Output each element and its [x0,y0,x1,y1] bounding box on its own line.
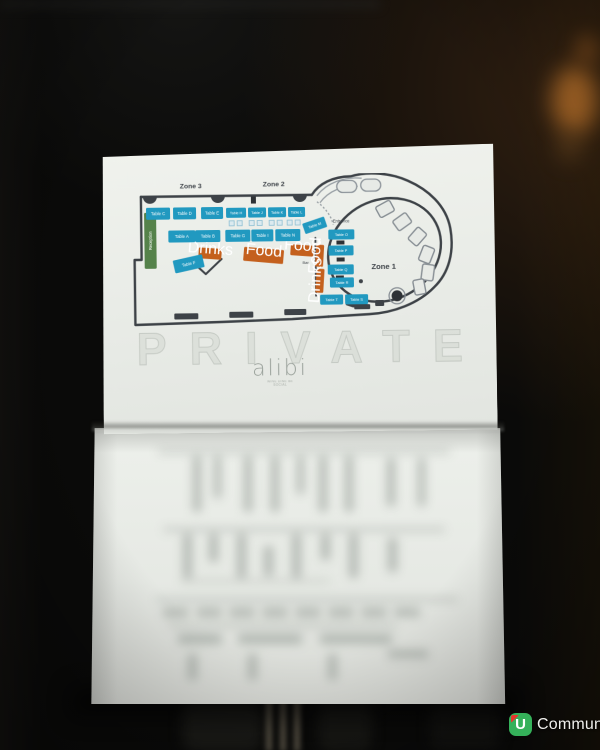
table-k: Table K [268,207,286,217]
ucommunity-letter: U [515,717,526,732]
table-l-label: Table L [291,210,303,214]
table-g: Table G [225,230,250,242]
table-l: Table L [288,207,305,217]
entrance-label: Entrance [333,218,350,223]
table-p-label: Table P [335,249,348,253]
reception-area: Reception [144,213,157,269]
table-a-label: Table A [175,234,189,239]
ucommunity-logo: U Community [509,713,600,736]
table-t-label: Table T [325,298,338,302]
table-j: Table J [248,207,266,217]
table-t: Table T [320,294,343,304]
table-q: Table Q [328,264,354,274]
venue-tagline: WINE DINE BE SOCIAL [260,380,301,387]
venue-logo-text: alibi [243,358,317,381]
reception-label: Reception [148,231,153,251]
ucommunity-badge-icon: U [509,713,532,736]
table-q-label: Table Q [334,268,347,272]
table-c: Table C [146,208,170,220]
table-o: Table O [328,229,354,239]
table-r-label: Table R [335,281,348,285]
table-h-label: Table H [230,211,243,215]
table-j-label: Table J [251,211,263,215]
table-r: Table R [330,277,354,287]
table-i: Table I [251,229,273,241]
table-m: Table M [302,216,327,234]
table-n-label: Table N [281,233,295,238]
table-g-label: Table G [231,233,245,238]
table-e-label: Table E [205,210,219,215]
table-b: Table B [195,230,220,242]
table-e: Table E [201,207,223,219]
photo-of-floorplan: Zone 3 Zone 2 Zone 1 Entrance Bar Drinks… [0,0,600,750]
table-s: Table S [345,294,368,304]
table-n: Table N [275,229,300,241]
ucommunity-name: Community [537,716,600,734]
zone-1-label: Zone 1 [371,262,396,271]
venue-logo: alibi WINE DINE BE SOCIAL [243,358,317,393]
zone-3-label: Zone 3 [180,183,202,190]
zone-2-label: Zone 2 [263,181,285,188]
table-s-label: Table S [350,298,363,302]
table-p: Table P [328,245,353,255]
table-k-label: Table K [271,210,284,214]
table-f: Table F [173,254,205,273]
food-main-station: Food [243,241,285,264]
table-d-label: Table D [177,211,191,216]
food-main-station-label: Food [245,241,283,261]
table-c-label: Table C [151,211,165,216]
chair-squares [229,220,300,226]
table-b-label: Table B [201,234,215,239]
table-d: Table D [173,207,196,219]
paper-upper-half: Zone 3 Zone 2 Zone 1 Entrance Bar Drinks… [100,144,497,435]
paper-shading [88,428,506,704]
background-highlight [0,0,380,8]
bokeh-light [574,34,600,66]
bokeh-light [552,66,598,134]
bokeh-light [556,128,584,162]
table-a: Table A [168,230,195,242]
table-i-label: Table I [256,233,268,238]
table-o-label: Table O [335,233,348,237]
paper-fold-crease [92,421,504,432]
table-h: Table H [226,208,246,218]
paper-lower-half [88,428,506,704]
